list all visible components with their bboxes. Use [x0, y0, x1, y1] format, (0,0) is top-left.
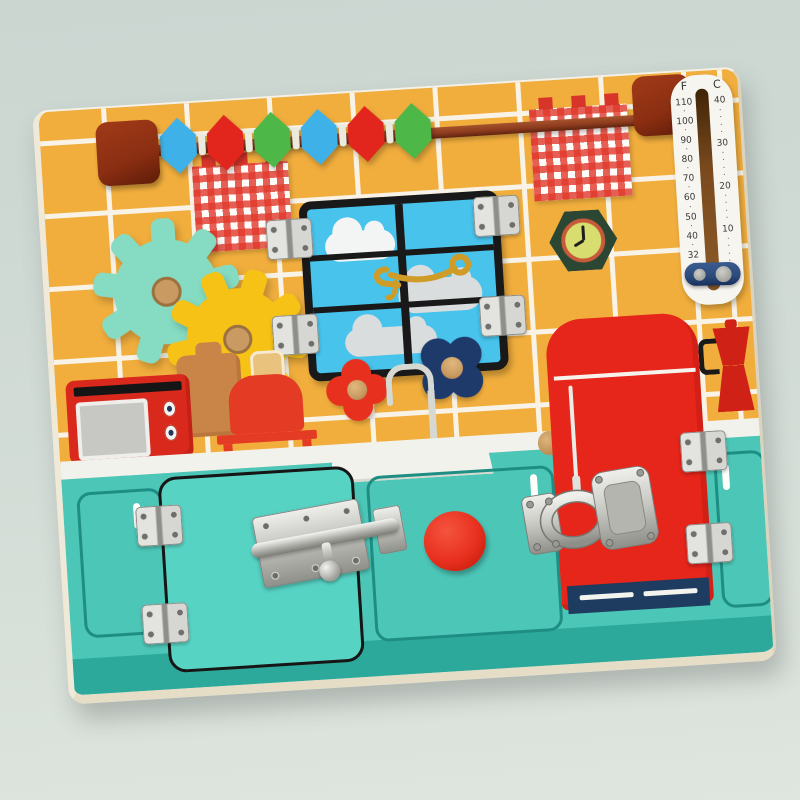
abacus-bead[interactable]: [253, 111, 292, 169]
scale-tick: ·: [683, 110, 686, 115]
fridge-vent: [643, 588, 697, 596]
scale-number: 20: [719, 181, 731, 192]
curtain-tab: [538, 97, 553, 110]
clock-hour-hand: [573, 239, 584, 247]
flower-knob-red[interactable]: [326, 359, 388, 421]
abacus-bead-spacer: [245, 130, 253, 152]
scale-number: 30: [716, 138, 728, 149]
clock-face: [560, 217, 607, 264]
gear-peg: [224, 325, 252, 353]
scale-tick: ·: [689, 205, 692, 210]
door-hinge-top: [135, 504, 183, 547]
curtain-tab: [571, 95, 586, 108]
abacus-bead[interactable]: [346, 105, 385, 163]
faucet-graphic: [385, 362, 435, 399]
product-photo: F C 110·100·90·80·70·60·50·40·32·20 40··…: [0, 0, 800, 800]
abacus-bead-spacer: [338, 124, 346, 146]
toaster-graphic: [227, 372, 304, 435]
abacus-bead[interactable]: [393, 102, 432, 160]
clock-minute-hand: [581, 225, 585, 240]
scale-tick: ·: [690, 224, 693, 229]
abacus-bead[interactable]: [206, 114, 245, 172]
microwave-strip: [73, 381, 181, 397]
scale-tick: ·: [720, 131, 723, 136]
scale-tick: ·: [691, 243, 694, 248]
scale-tick: ·: [685, 148, 688, 153]
window-hinge-top-left: [265, 218, 313, 261]
scale-tick: ·: [686, 167, 689, 172]
microwave-dial: [163, 400, 177, 417]
door-hinge-bottom: [141, 602, 189, 645]
scale-tick: ·: [688, 186, 691, 191]
thermometer-slider[interactable]: [684, 262, 741, 287]
microwave-dial: [164, 424, 178, 441]
abacus-bead-spacer: [198, 133, 206, 155]
scale-number: 40: [714, 95, 726, 106]
scale-tick: ·: [684, 129, 687, 134]
thermometer-f-label: F: [680, 80, 687, 93]
fridge-vent: [580, 592, 634, 600]
microwave-graphic: [65, 374, 194, 466]
abacus-bead[interactable]: [299, 108, 338, 166]
window-hinge-top-right: [472, 194, 520, 237]
slider-hole: [693, 269, 705, 281]
fridge-hinge-top: [680, 430, 728, 473]
moka-pot-handle: [698, 338, 720, 375]
microwave-window: [75, 398, 150, 460]
abacus-bead[interactable]: [159, 117, 198, 175]
busy-board: F C 110·100·90·80·70·60·50·40·32·20 40··…: [32, 66, 777, 704]
abacus-bead-spacer: [385, 121, 393, 143]
curtain-tab: [604, 93, 619, 106]
thermometer-c-label: C: [713, 78, 721, 91]
scale-number: 10: [722, 224, 734, 235]
slider-hole: [715, 266, 731, 282]
scale-tick: ·: [723, 174, 726, 179]
window-hinge-bottom-right: [479, 294, 527, 337]
abacus-bead-spacer: [292, 127, 300, 149]
fridge-hinge-bottom: [685, 522, 733, 565]
abacus-cap-left: [95, 119, 161, 187]
scale-tick: ·: [726, 217, 729, 222]
